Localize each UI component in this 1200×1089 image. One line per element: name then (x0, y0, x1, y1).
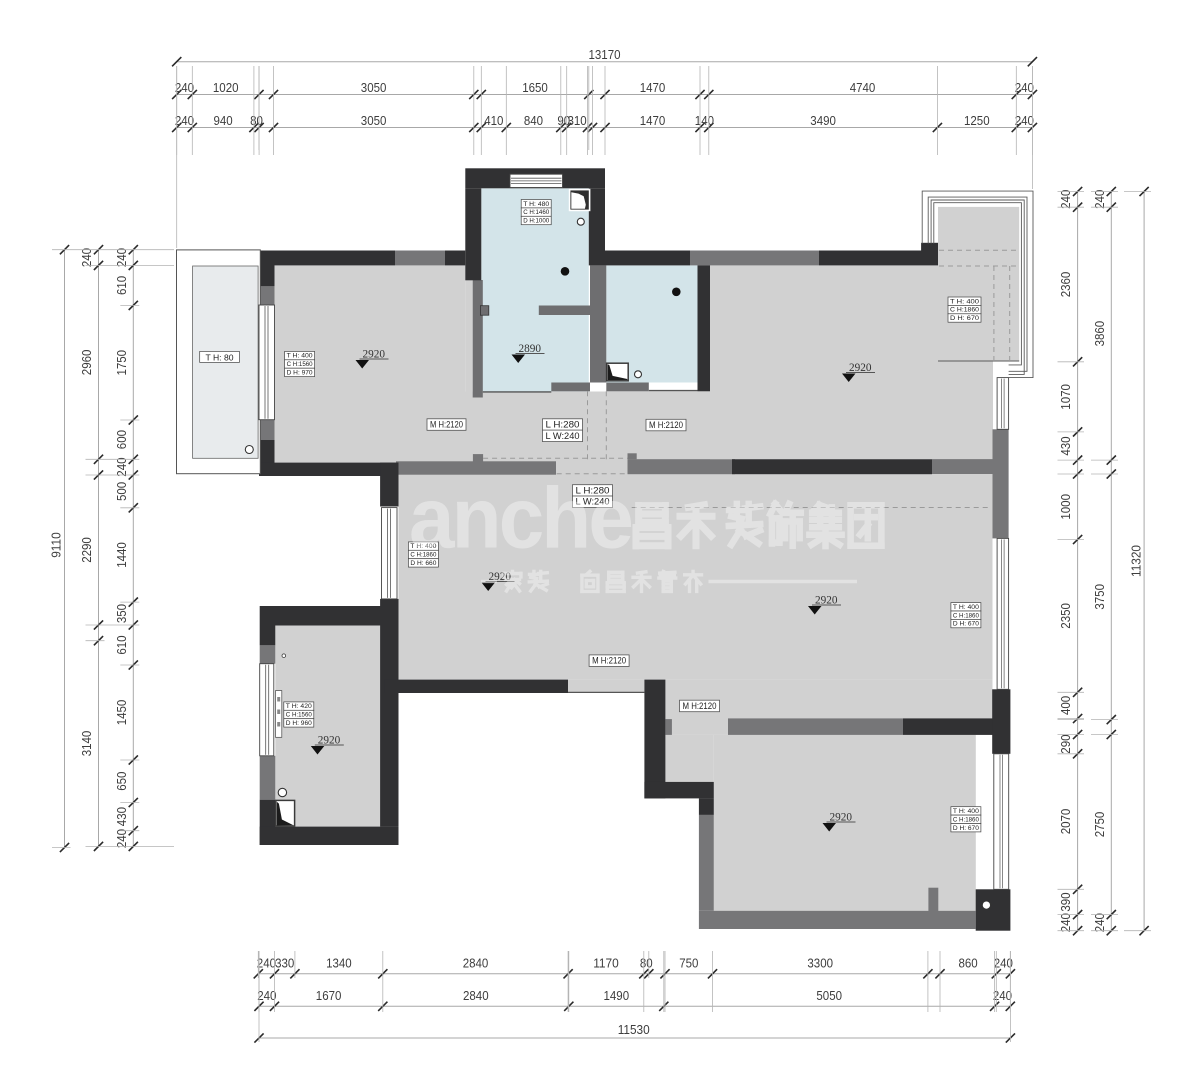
svg-text:430: 430 (114, 807, 129, 826)
svg-text:290: 290 (1058, 735, 1073, 754)
svg-text:2350: 2350 (1058, 603, 1073, 629)
svg-text:2960: 2960 (79, 350, 94, 376)
svg-text:4740: 4740 (850, 80, 876, 95)
svg-text:240: 240 (993, 988, 1012, 1003)
svg-text:1340: 1340 (326, 956, 352, 971)
svg-text:390: 390 (1058, 892, 1073, 911)
svg-text:80: 80 (250, 113, 263, 128)
svg-text:1470: 1470 (640, 113, 666, 128)
svg-text:L H:280: L H:280 (546, 420, 580, 431)
svg-text:610: 610 (114, 635, 129, 654)
svg-text:D H: 670: D H: 670 (950, 315, 979, 322)
svg-text:240: 240 (1015, 113, 1034, 128)
svg-text:3860: 3860 (1092, 321, 1107, 347)
svg-text:L W:240: L W:240 (546, 431, 580, 442)
svg-text:M H:2120: M H:2120 (649, 420, 683, 431)
svg-text:500: 500 (114, 482, 129, 501)
svg-text:80: 80 (640, 956, 653, 971)
svg-text:M H:2120: M H:2120 (592, 656, 626, 667)
svg-text:C H:1860: C H:1860 (953, 612, 979, 619)
svg-text:2840: 2840 (463, 956, 489, 971)
svg-text:240: 240 (257, 988, 276, 1003)
svg-text:5050: 5050 (816, 988, 842, 1003)
svg-text:T H: 480: T H: 480 (523, 201, 549, 208)
svg-text:1070: 1070 (1058, 384, 1073, 410)
svg-text:T H: 400: T H: 400 (953, 604, 979, 611)
svg-text:1490: 1490 (604, 988, 630, 1003)
svg-text:1750: 1750 (114, 350, 129, 376)
svg-text:D H: 960: D H: 960 (286, 720, 312, 727)
svg-text:240: 240 (1092, 913, 1107, 932)
svg-text:2920: 2920 (849, 360, 872, 374)
svg-text:860: 860 (959, 956, 978, 971)
svg-text:1450: 1450 (114, 700, 129, 726)
svg-text:2920: 2920 (363, 347, 386, 361)
svg-text:330: 330 (275, 956, 294, 971)
svg-text:T H: 420: T H: 420 (286, 703, 312, 710)
svg-text:1000: 1000 (1058, 494, 1073, 520)
svg-text:240: 240 (1058, 913, 1073, 932)
svg-text:1440: 1440 (114, 542, 129, 568)
svg-text:T H: 80: T H: 80 (206, 353, 235, 362)
svg-text:940: 940 (214, 113, 233, 128)
svg-text:2920: 2920 (318, 733, 341, 747)
svg-text:9110: 9110 (49, 532, 64, 558)
svg-text:840: 840 (524, 113, 543, 128)
svg-text:13170: 13170 (589, 47, 621, 62)
svg-text:T H: 400: T H: 400 (287, 353, 313, 360)
svg-text:240: 240 (1092, 190, 1107, 209)
svg-text:T H: 400: T H: 400 (953, 808, 979, 815)
svg-text:C H:1460: C H:1460 (523, 209, 549, 216)
svg-text:3140: 3140 (79, 731, 94, 757)
svg-text:410: 410 (484, 113, 503, 128)
svg-text:M H:2120: M H:2120 (683, 701, 717, 712)
svg-text:240: 240 (257, 956, 276, 971)
svg-text:1470: 1470 (640, 80, 666, 95)
svg-text:anche: anche (409, 471, 631, 567)
svg-text:C H:1560: C H:1560 (286, 712, 312, 719)
svg-text:140: 140 (695, 113, 714, 128)
svg-text:C H:1860: C H:1860 (953, 816, 979, 823)
svg-text:1650: 1650 (522, 80, 548, 95)
svg-text:240: 240 (1015, 80, 1034, 95)
svg-text:11320: 11320 (1129, 545, 1144, 577)
svg-text:M H:2120: M H:2120 (430, 420, 463, 431)
svg-text:2840: 2840 (463, 988, 489, 1003)
svg-text:650: 650 (114, 772, 129, 791)
svg-text:240: 240 (79, 248, 94, 267)
svg-text:2920: 2920 (815, 593, 838, 607)
svg-text:350: 350 (114, 604, 129, 623)
svg-text:1170: 1170 (593, 956, 619, 971)
svg-text:240: 240 (1058, 190, 1073, 209)
svg-text:D H:1000: D H:1000 (523, 218, 549, 225)
svg-text:3050: 3050 (361, 113, 387, 128)
svg-text:2360: 2360 (1058, 272, 1073, 298)
svg-text:2290: 2290 (79, 537, 94, 563)
svg-text:1670: 1670 (316, 988, 342, 1003)
svg-text:D H: 670: D H: 670 (953, 621, 979, 628)
svg-text:430: 430 (1058, 436, 1073, 455)
svg-text:D H: 670: D H: 670 (953, 825, 979, 832)
svg-text:11530: 11530 (618, 1022, 650, 1037)
svg-text:2890: 2890 (519, 341, 542, 355)
svg-text:3050: 3050 (361, 80, 387, 95)
svg-text:3490: 3490 (810, 113, 836, 128)
svg-text:2070: 2070 (1058, 809, 1073, 835)
svg-text:610: 610 (114, 276, 129, 295)
svg-text:310: 310 (568, 113, 587, 128)
svg-text:1250: 1250 (964, 113, 990, 128)
svg-text:400: 400 (1058, 696, 1073, 715)
svg-text:D H: 970: D H: 970 (287, 370, 313, 377)
svg-text:C H:1860: C H:1860 (950, 307, 979, 314)
svg-text:2750: 2750 (1092, 812, 1107, 838)
svg-text:1020: 1020 (213, 80, 239, 95)
svg-text:240: 240 (175, 80, 194, 95)
svg-text:600: 600 (114, 430, 129, 449)
svg-text:3750: 3750 (1092, 584, 1107, 610)
svg-text:3300: 3300 (807, 956, 833, 971)
svg-text:240: 240 (114, 458, 129, 477)
svg-text:2920: 2920 (830, 810, 853, 824)
svg-text:750: 750 (679, 956, 698, 971)
svg-text:T H: 400: T H: 400 (950, 298, 979, 305)
svg-text:C H:1560: C H:1560 (287, 361, 313, 368)
svg-text:240: 240 (114, 248, 129, 267)
svg-text:240: 240 (175, 113, 194, 128)
svg-text:240: 240 (114, 829, 129, 848)
